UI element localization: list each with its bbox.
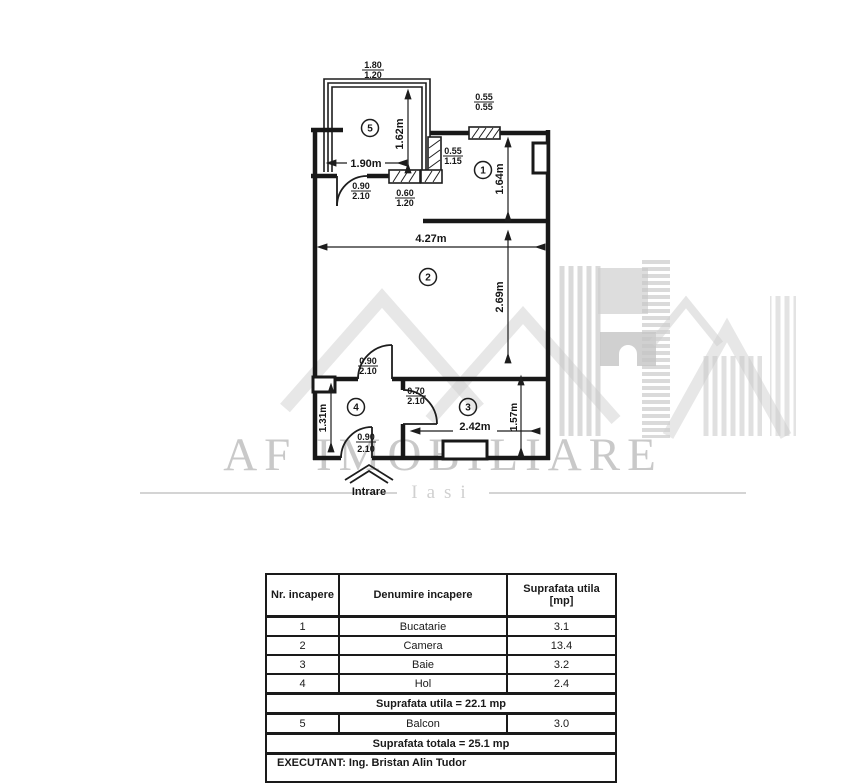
cell-name: Balcon [339, 714, 507, 734]
room-5-balcony: 5 [367, 124, 373, 135]
cell-name: Bucatarie [339, 617, 507, 637]
entrance-label: Intrare [352, 486, 386, 498]
table-row: 5 Balcon 3.0 [266, 714, 616, 734]
total-row: Suprafata totala = 25.1 mp [266, 734, 616, 754]
label-bath-door-w: 0.70 [407, 386, 425, 396]
label-balcony-small-window-h: 1.20 [396, 198, 414, 208]
label-kitchen-top-window-h: 0.55 [475, 102, 493, 112]
label-entry-door-h: 2.10 [357, 444, 375, 454]
cell-area: 3.1 [507, 617, 616, 637]
label-kitchen-side-window-h: 1.15 [444, 156, 462, 166]
entrance-chevron-icon [345, 465, 393, 480]
cell-name: Camera [339, 636, 507, 655]
dim-balcony-width: 1.90m [350, 158, 381, 170]
label-hall-door-h: 2.10 [359, 366, 377, 376]
cell-area: 2.4 [507, 674, 616, 694]
label-balcony-door-w: 0.90 [352, 181, 370, 191]
cell-nr: 1 [266, 617, 339, 637]
cell-area: 13.4 [507, 636, 616, 655]
label-entry-door-w: 0.90 [357, 432, 375, 442]
cell-nr: 5 [266, 714, 339, 734]
dim-kitchen-height: 1.64m [494, 163, 506, 194]
dim-room-height: 2.69m [494, 281, 506, 312]
label-balcony-window-h: 1.20 [364, 70, 382, 80]
label-bath-door-h: 2.10 [407, 396, 425, 406]
subtotal-text: Suprafata utila = 22.1 mp [266, 694, 616, 714]
cell-area: 3.2 [507, 655, 616, 674]
entrance-marker: Intrare [345, 465, 393, 498]
label-kitchen-side-window-w: 0.55 [444, 146, 462, 156]
header-denumire: Denumire incapere [339, 574, 507, 617]
cell-name: Baie [339, 655, 507, 674]
table-row: 2 Camera 13.4 [266, 636, 616, 655]
table-row: 1 Bucatarie 3.1 [266, 617, 616, 637]
header-nr: Nr. incapere [266, 574, 339, 617]
label-balcony-small-window-w: 0.60 [396, 188, 414, 198]
table-row: 4 Hol 2.4 [266, 674, 616, 694]
total-text: Suprafata totala = 25.1 mp [266, 734, 616, 754]
dim-bath-height: 1.57m [509, 403, 520, 431]
label-balcony-window-w: 1.80 [364, 60, 382, 70]
header-suprafata-line1: Suprafata utila [508, 583, 615, 595]
cell-name: Hol [339, 674, 507, 694]
scanned-floorplan-page: { "watermark": { "brand": "AF IMOBILIARE… [0, 0, 859, 768]
room-3-baie: 3 [465, 403, 471, 414]
label-balcony-door-h: 2.10 [352, 191, 370, 201]
label-kitchen-top-window-w: 0.55 [475, 92, 493, 102]
cell-nr: 2 [266, 636, 339, 655]
label-hall-door-w: 0.90 [359, 356, 377, 366]
subtotal-row: Suprafata utila = 22.1 mp [266, 694, 616, 714]
header-suprafata: Suprafata utila [mp] [507, 574, 616, 617]
room-2-camera: 2 [425, 273, 431, 284]
table-header-row: Nr. incapere Denumire incapere Suprafata… [266, 574, 616, 617]
cell-area: 3.0 [507, 714, 616, 734]
header-suprafata-line2: [mp] [508, 595, 615, 607]
dim-bath-width: 2.42m [459, 421, 490, 433]
doors [337, 176, 437, 458]
dim-room-width: 4.27m [415, 233, 446, 245]
cell-nr: 3 [266, 655, 339, 674]
dim-balcony-depth: 1.62m [394, 118, 406, 149]
floor-plan-svg: 1.90m 1.62m 1.64m 4.27m 2.69m 1.31m 2.42… [300, 52, 585, 512]
table-row: 3 Baie 3.2 [266, 655, 616, 674]
dim-hall-height: 1.31m [318, 404, 329, 432]
room-4-hol: 4 [353, 403, 359, 414]
area-table: Nr. incapere Denumire incapere Suprafata… [265, 573, 617, 783]
room-1-bucatarie: 1 [480, 166, 486, 177]
cell-nr: 4 [266, 674, 339, 694]
